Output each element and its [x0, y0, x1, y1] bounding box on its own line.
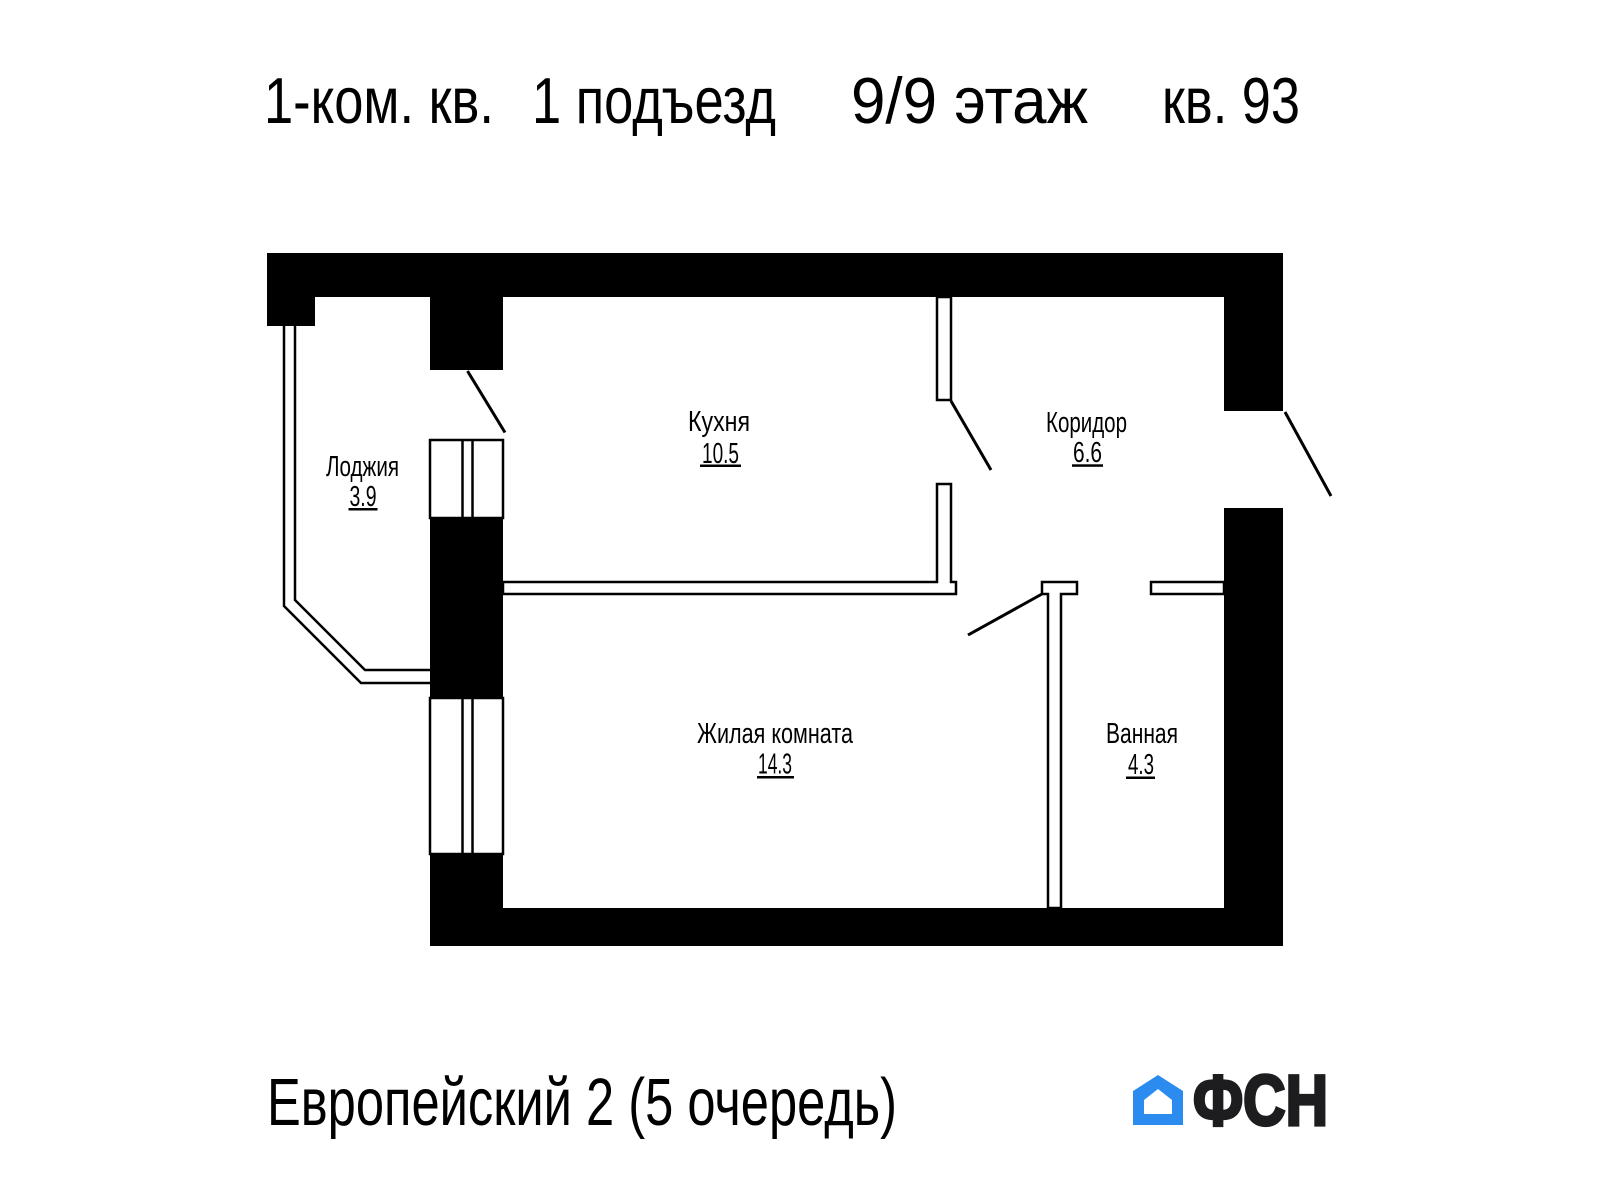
svg-text:6.6: 6.6	[1073, 437, 1102, 469]
svg-text:1 подъезд: 1 подъезд	[532, 64, 776, 137]
svg-text:Европейский 2 (5 очередь): Европейский 2 (5 очередь)	[267, 1065, 897, 1140]
svg-text:кв. 93: кв. 93	[1162, 64, 1300, 137]
svg-text:1-ком. кв.: 1-ком. кв.	[264, 64, 494, 137]
svg-text:ФСН: ФСН	[1193, 1062, 1328, 1141]
svg-text:Лоджия: Лоджия	[326, 451, 399, 483]
svg-text:Жилая комната: Жилая комната	[697, 718, 854, 750]
svg-text:14.3: 14.3	[758, 749, 792, 781]
svg-text:4.3: 4.3	[1128, 749, 1154, 781]
svg-text:Ванная: Ванная	[1106, 718, 1178, 750]
svg-text:9/9 этаж: 9/9 этаж	[851, 64, 1088, 137]
svg-text:Кухня: Кухня	[688, 406, 750, 438]
svg-text:Коридор: Коридор	[1046, 407, 1127, 439]
